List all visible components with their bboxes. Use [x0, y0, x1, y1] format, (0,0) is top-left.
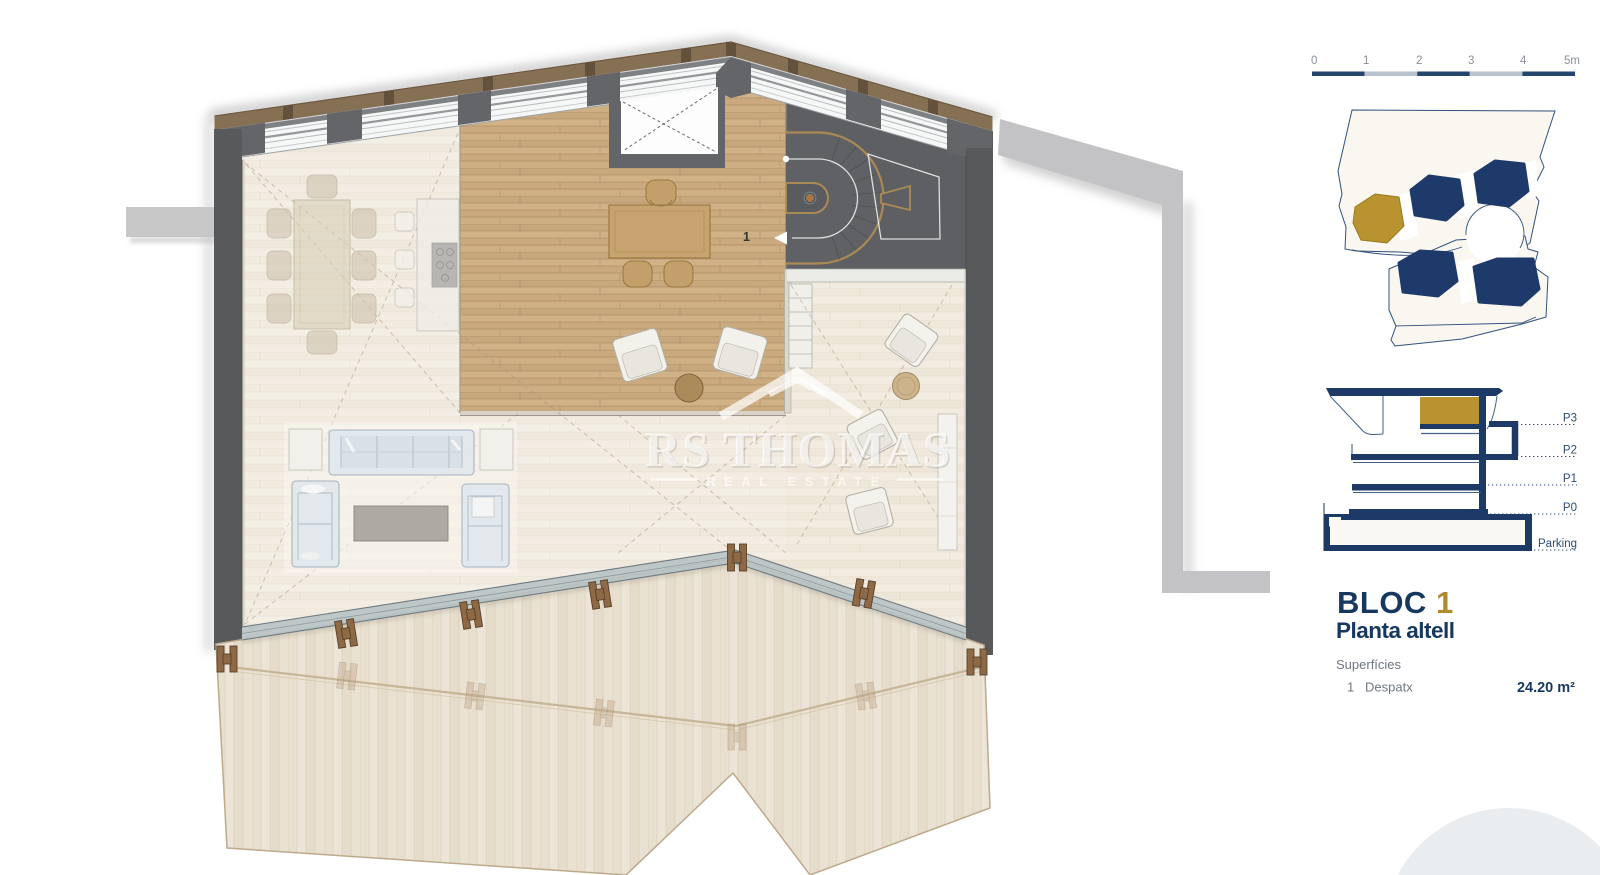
svg-text:4: 4: [1520, 55, 1527, 67]
svg-text:2: 2: [1416, 55, 1422, 67]
svg-text:RS THOMAS: RS THOMAS: [645, 421, 952, 477]
svg-text:P0: P0: [1563, 502, 1577, 514]
svg-text:Parking: Parking: [1538, 538, 1577, 550]
svg-text:Despatx: Despatx: [1365, 680, 1413, 695]
svg-text:BLOC 1: BLOC 1: [1337, 585, 1454, 620]
svg-text:Planta altell: Planta altell: [1336, 618, 1455, 643]
svg-text:Superfícies: Superfícies: [1336, 657, 1402, 672]
svg-text:24.20 m²: 24.20 m²: [1517, 680, 1575, 696]
svg-text:5m: 5m: [1564, 55, 1580, 67]
svg-text:P2: P2: [1563, 445, 1577, 457]
svg-text:3: 3: [1468, 55, 1474, 67]
svg-text:P1: P1: [1563, 473, 1577, 485]
svg-text:0: 0: [1311, 55, 1317, 67]
svg-text:1: 1: [1347, 680, 1354, 695]
svg-text:P3: P3: [1563, 413, 1577, 425]
svg-text:REAL ESTATE: REAL ESTATE: [706, 474, 888, 489]
svg-text:1: 1: [743, 230, 750, 244]
svg-text:1: 1: [1363, 55, 1369, 67]
